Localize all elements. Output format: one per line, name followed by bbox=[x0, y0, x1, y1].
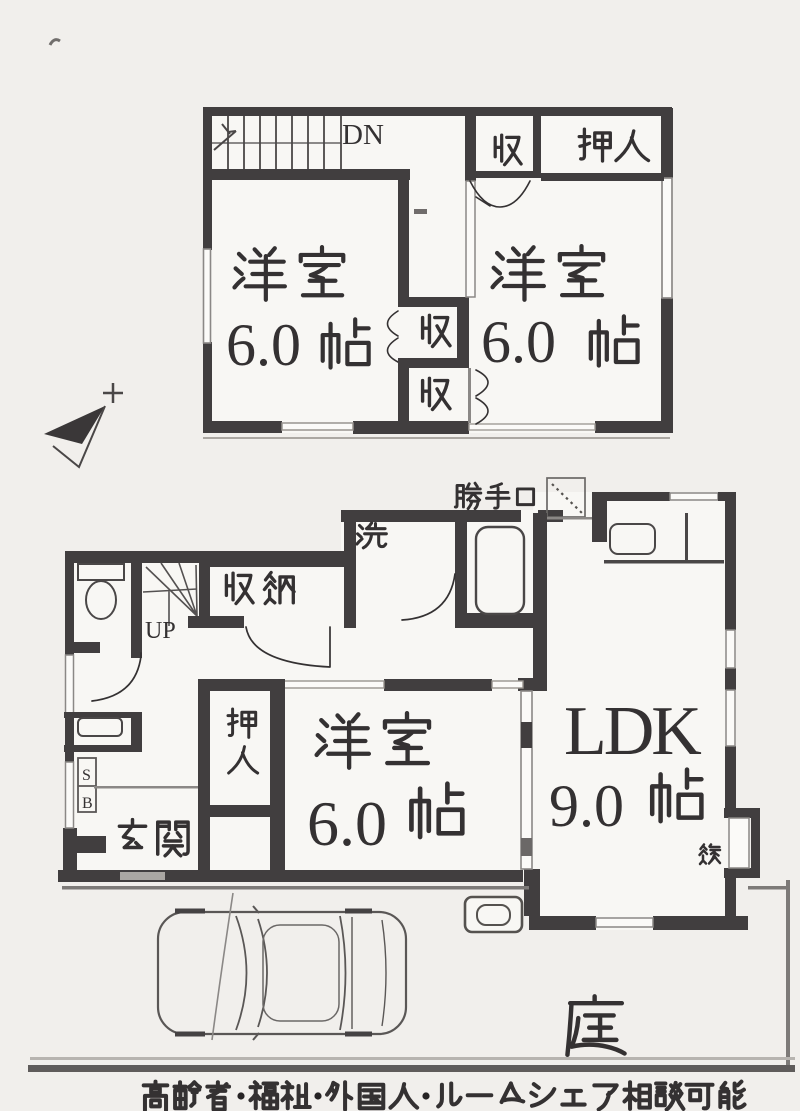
svg-text:B: B bbox=[82, 795, 93, 812]
svg-text:6.0: 6.0 bbox=[481, 309, 556, 375]
svg-text:6.0: 6.0 bbox=[307, 788, 387, 859]
svg-text:LDK: LDK bbox=[564, 693, 701, 770]
svg-text:DN: DN bbox=[342, 119, 384, 151]
svg-text:6.0: 6.0 bbox=[226, 312, 301, 378]
svg-text:9.0: 9.0 bbox=[549, 773, 624, 839]
svg-text:UP: UP bbox=[145, 618, 176, 644]
svg-text:S: S bbox=[82, 767, 91, 784]
